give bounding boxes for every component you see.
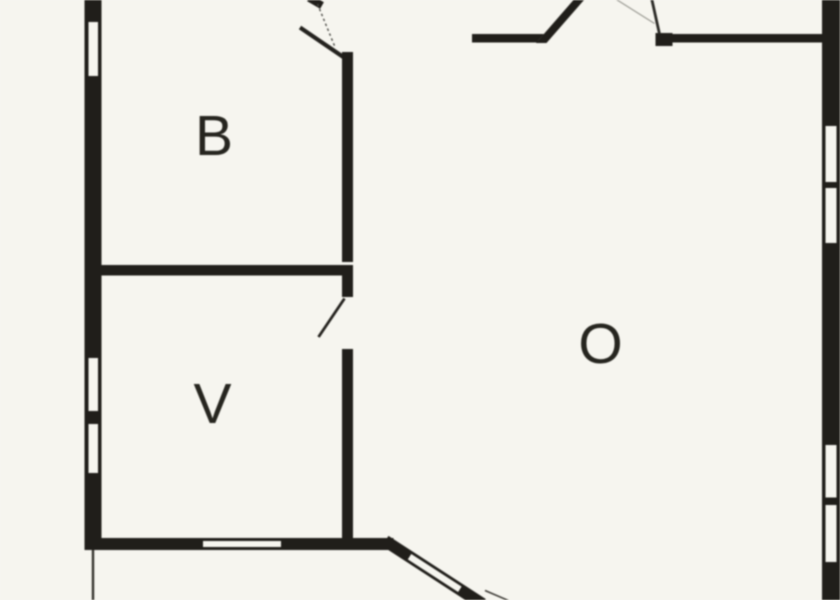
svg-text:V: V [193, 372, 231, 436]
svg-text:B: B [195, 104, 233, 168]
svg-text:O: O [578, 312, 622, 376]
